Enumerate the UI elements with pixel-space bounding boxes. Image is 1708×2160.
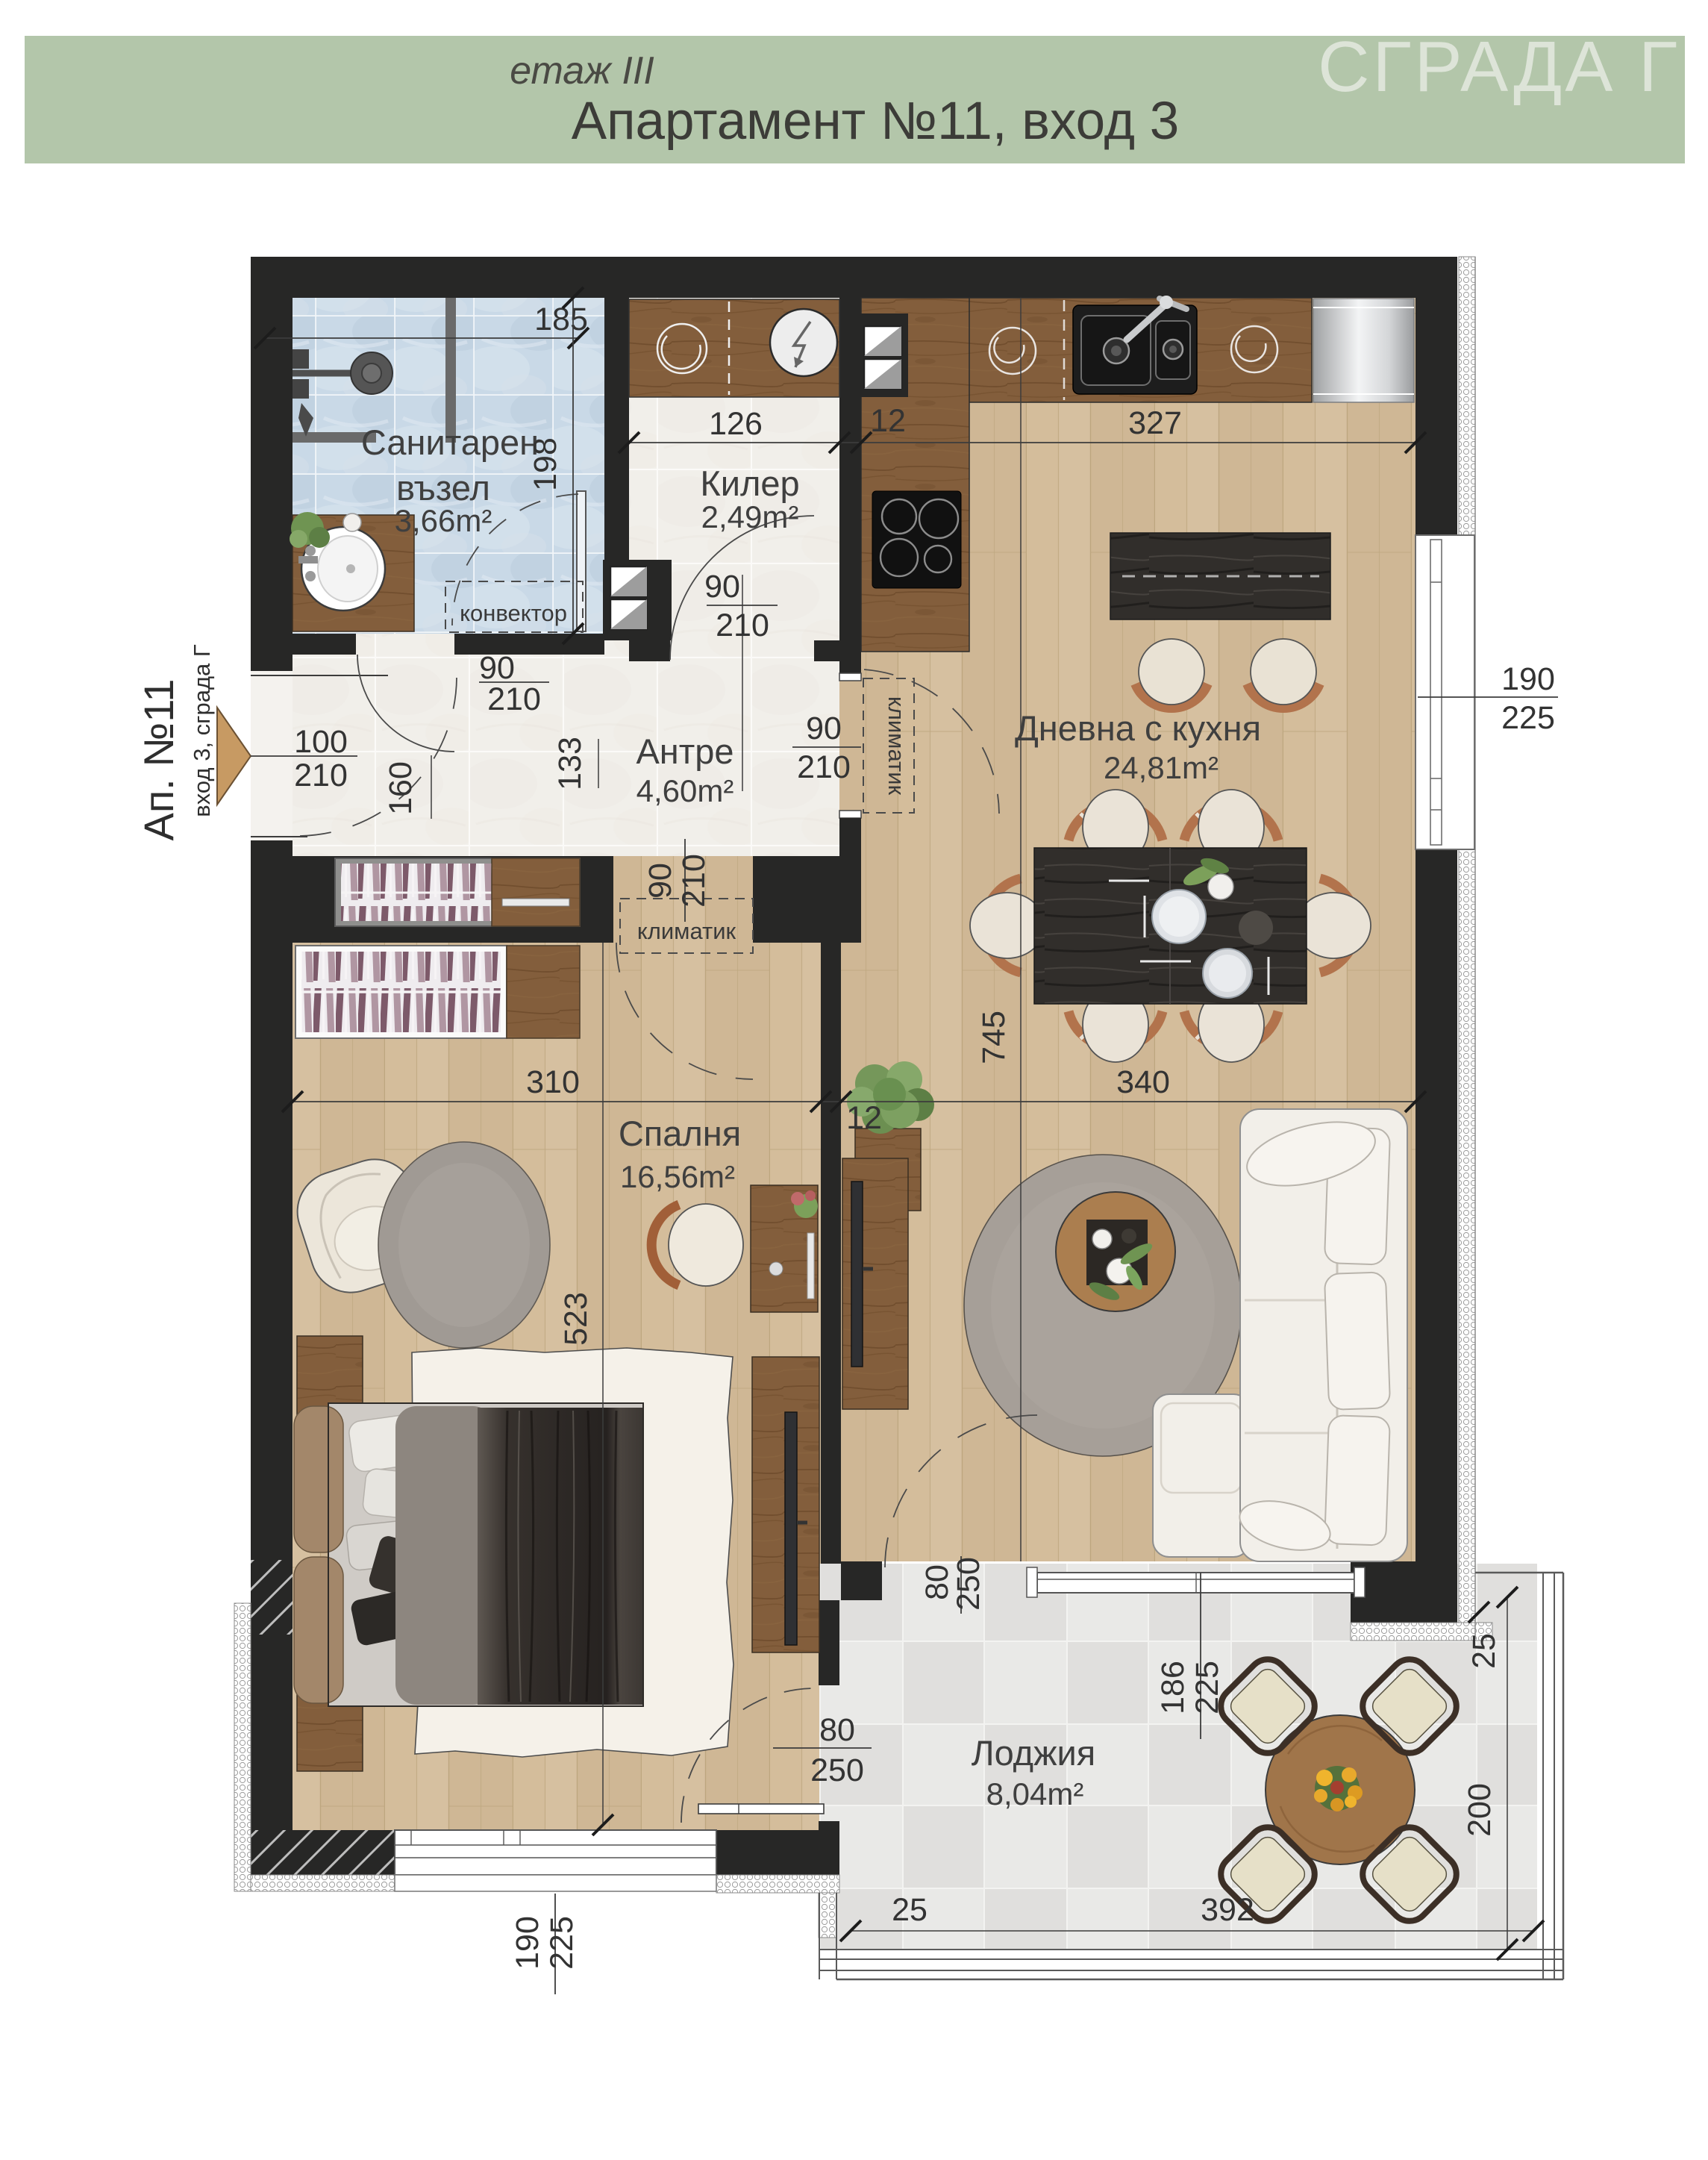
svg-text:Санитарен: Санитарен bbox=[361, 422, 539, 462]
svg-text:250: 250 bbox=[810, 1752, 864, 1788]
svg-text:климатик: климатик bbox=[883, 696, 910, 796]
svg-text:160: 160 bbox=[383, 761, 419, 815]
svg-text:745: 745 bbox=[976, 1011, 1012, 1064]
svg-text:210: 210 bbox=[294, 758, 348, 793]
svg-text:Дневна с кухня: Дневна с кухня bbox=[1015, 708, 1261, 748]
svg-text:3,66m²: 3,66m² bbox=[395, 503, 492, 538]
svg-text:Антре: Антре bbox=[636, 731, 733, 771]
svg-text:вход 3, сграда Г: вход 3, сграда Г bbox=[189, 644, 215, 817]
svg-text:225: 225 bbox=[1501, 700, 1555, 736]
svg-text:СГРАДА Г: СГРАДА Г bbox=[1318, 27, 1680, 107]
svg-text:Апартамент №11, вход 3: Апартамент №11, вход 3 bbox=[572, 92, 1180, 151]
svg-text:90: 90 bbox=[479, 650, 515, 686]
svg-text:конвектор: конвектор bbox=[460, 600, 567, 626]
svg-text:523: 523 bbox=[558, 1292, 594, 1346]
svg-text:327: 327 bbox=[1128, 405, 1182, 441]
svg-text:12: 12 bbox=[846, 1100, 882, 1136]
svg-text:90: 90 bbox=[642, 863, 678, 899]
svg-text:4,60m²: 4,60m² bbox=[636, 773, 734, 808]
svg-text:100: 100 bbox=[294, 724, 348, 760]
svg-text:8,04m²: 8,04m² bbox=[986, 1776, 1084, 1811]
svg-text:16,56m²: 16,56m² bbox=[620, 1159, 735, 1194]
svg-text:210: 210 bbox=[797, 749, 851, 785]
svg-text:възел: възел bbox=[396, 468, 490, 508]
svg-text:210: 210 bbox=[676, 854, 712, 908]
svg-text:186: 186 bbox=[1155, 1661, 1191, 1714]
svg-text:340: 340 bbox=[1116, 1064, 1170, 1100]
svg-text:24,81m²: 24,81m² bbox=[1104, 750, 1219, 785]
svg-text:80: 80 bbox=[919, 1564, 955, 1600]
svg-text:198: 198 bbox=[528, 437, 563, 491]
svg-text:2,49m²: 2,49m² bbox=[701, 499, 799, 534]
svg-text:Спалня: Спалня bbox=[619, 1114, 741, 1153]
svg-text:133: 133 bbox=[552, 737, 588, 790]
svg-text:25: 25 bbox=[1466, 1633, 1502, 1669]
svg-text:126: 126 bbox=[709, 406, 763, 442]
svg-text:80: 80 bbox=[819, 1712, 855, 1748]
svg-text:225: 225 bbox=[1189, 1661, 1225, 1714]
svg-text:Килер: Килер bbox=[700, 463, 799, 503]
svg-text:310: 310 bbox=[526, 1064, 580, 1100]
svg-text:етаж III: етаж III bbox=[510, 49, 654, 93]
svg-text:Лоджия: Лоджия bbox=[972, 1733, 1096, 1773]
svg-text:225: 225 bbox=[544, 1916, 580, 1970]
svg-text:190: 190 bbox=[1501, 661, 1555, 697]
svg-text:250: 250 bbox=[951, 1557, 986, 1611]
svg-text:90: 90 bbox=[704, 569, 740, 605]
svg-text:210: 210 bbox=[716, 608, 769, 643]
svg-text:210: 210 bbox=[487, 681, 541, 717]
svg-text:12: 12 bbox=[870, 403, 906, 439]
svg-text:185: 185 bbox=[534, 302, 588, 337]
svg-text:90: 90 bbox=[806, 711, 842, 746]
svg-text:190: 190 bbox=[510, 1916, 545, 1970]
svg-text:200: 200 bbox=[1462, 1783, 1498, 1837]
svg-text:25: 25 bbox=[892, 1892, 927, 1928]
svg-text:Ап. №11: Ап. №11 bbox=[135, 679, 182, 841]
svg-text:392: 392 bbox=[1201, 1892, 1254, 1928]
svg-text:климатик: климатик bbox=[637, 918, 736, 944]
